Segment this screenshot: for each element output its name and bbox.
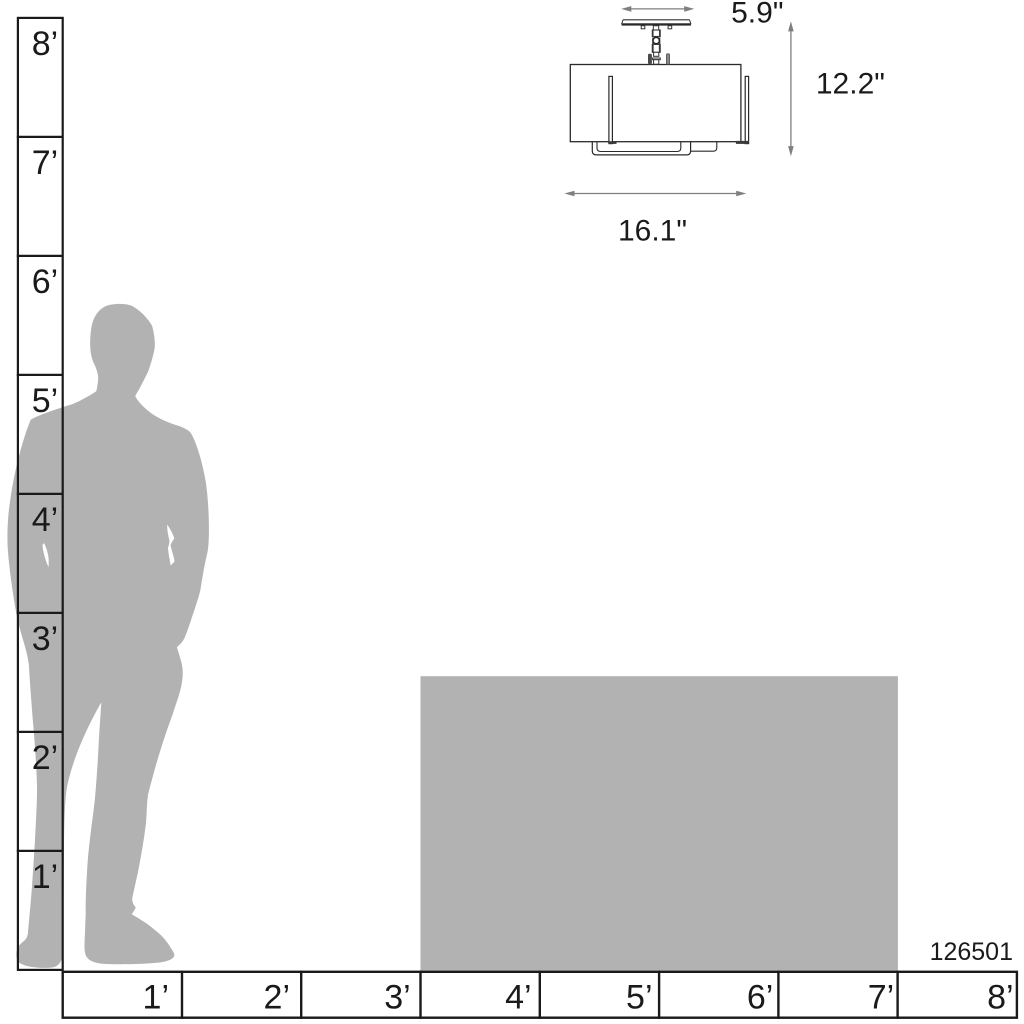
svg-text:3’: 3’ (32, 620, 58, 658)
svg-text:16.1": 16.1" (618, 215, 687, 248)
svg-text:7’: 7’ (868, 979, 894, 1017)
svg-text:5’: 5’ (32, 382, 58, 420)
svg-text:3’: 3’ (384, 979, 410, 1017)
svg-text:8’: 8’ (987, 979, 1013, 1017)
svg-text:126501: 126501 (930, 938, 1013, 966)
svg-text:2’: 2’ (264, 979, 290, 1017)
svg-text:7’: 7’ (32, 144, 58, 182)
svg-text:4’: 4’ (32, 501, 58, 539)
svg-text:4’: 4’ (505, 979, 531, 1017)
svg-text:2’: 2’ (32, 739, 58, 777)
svg-text:6’: 6’ (747, 979, 773, 1017)
svg-text:5.9": 5.9" (731, 0, 783, 29)
svg-text:8’: 8’ (32, 25, 58, 63)
svg-text:5’: 5’ (626, 979, 652, 1017)
svg-text:1’: 1’ (143, 979, 169, 1017)
svg-text:12.2": 12.2" (816, 68, 885, 101)
svg-text:6’: 6’ (32, 263, 58, 301)
svg-text:1’: 1’ (32, 858, 58, 896)
